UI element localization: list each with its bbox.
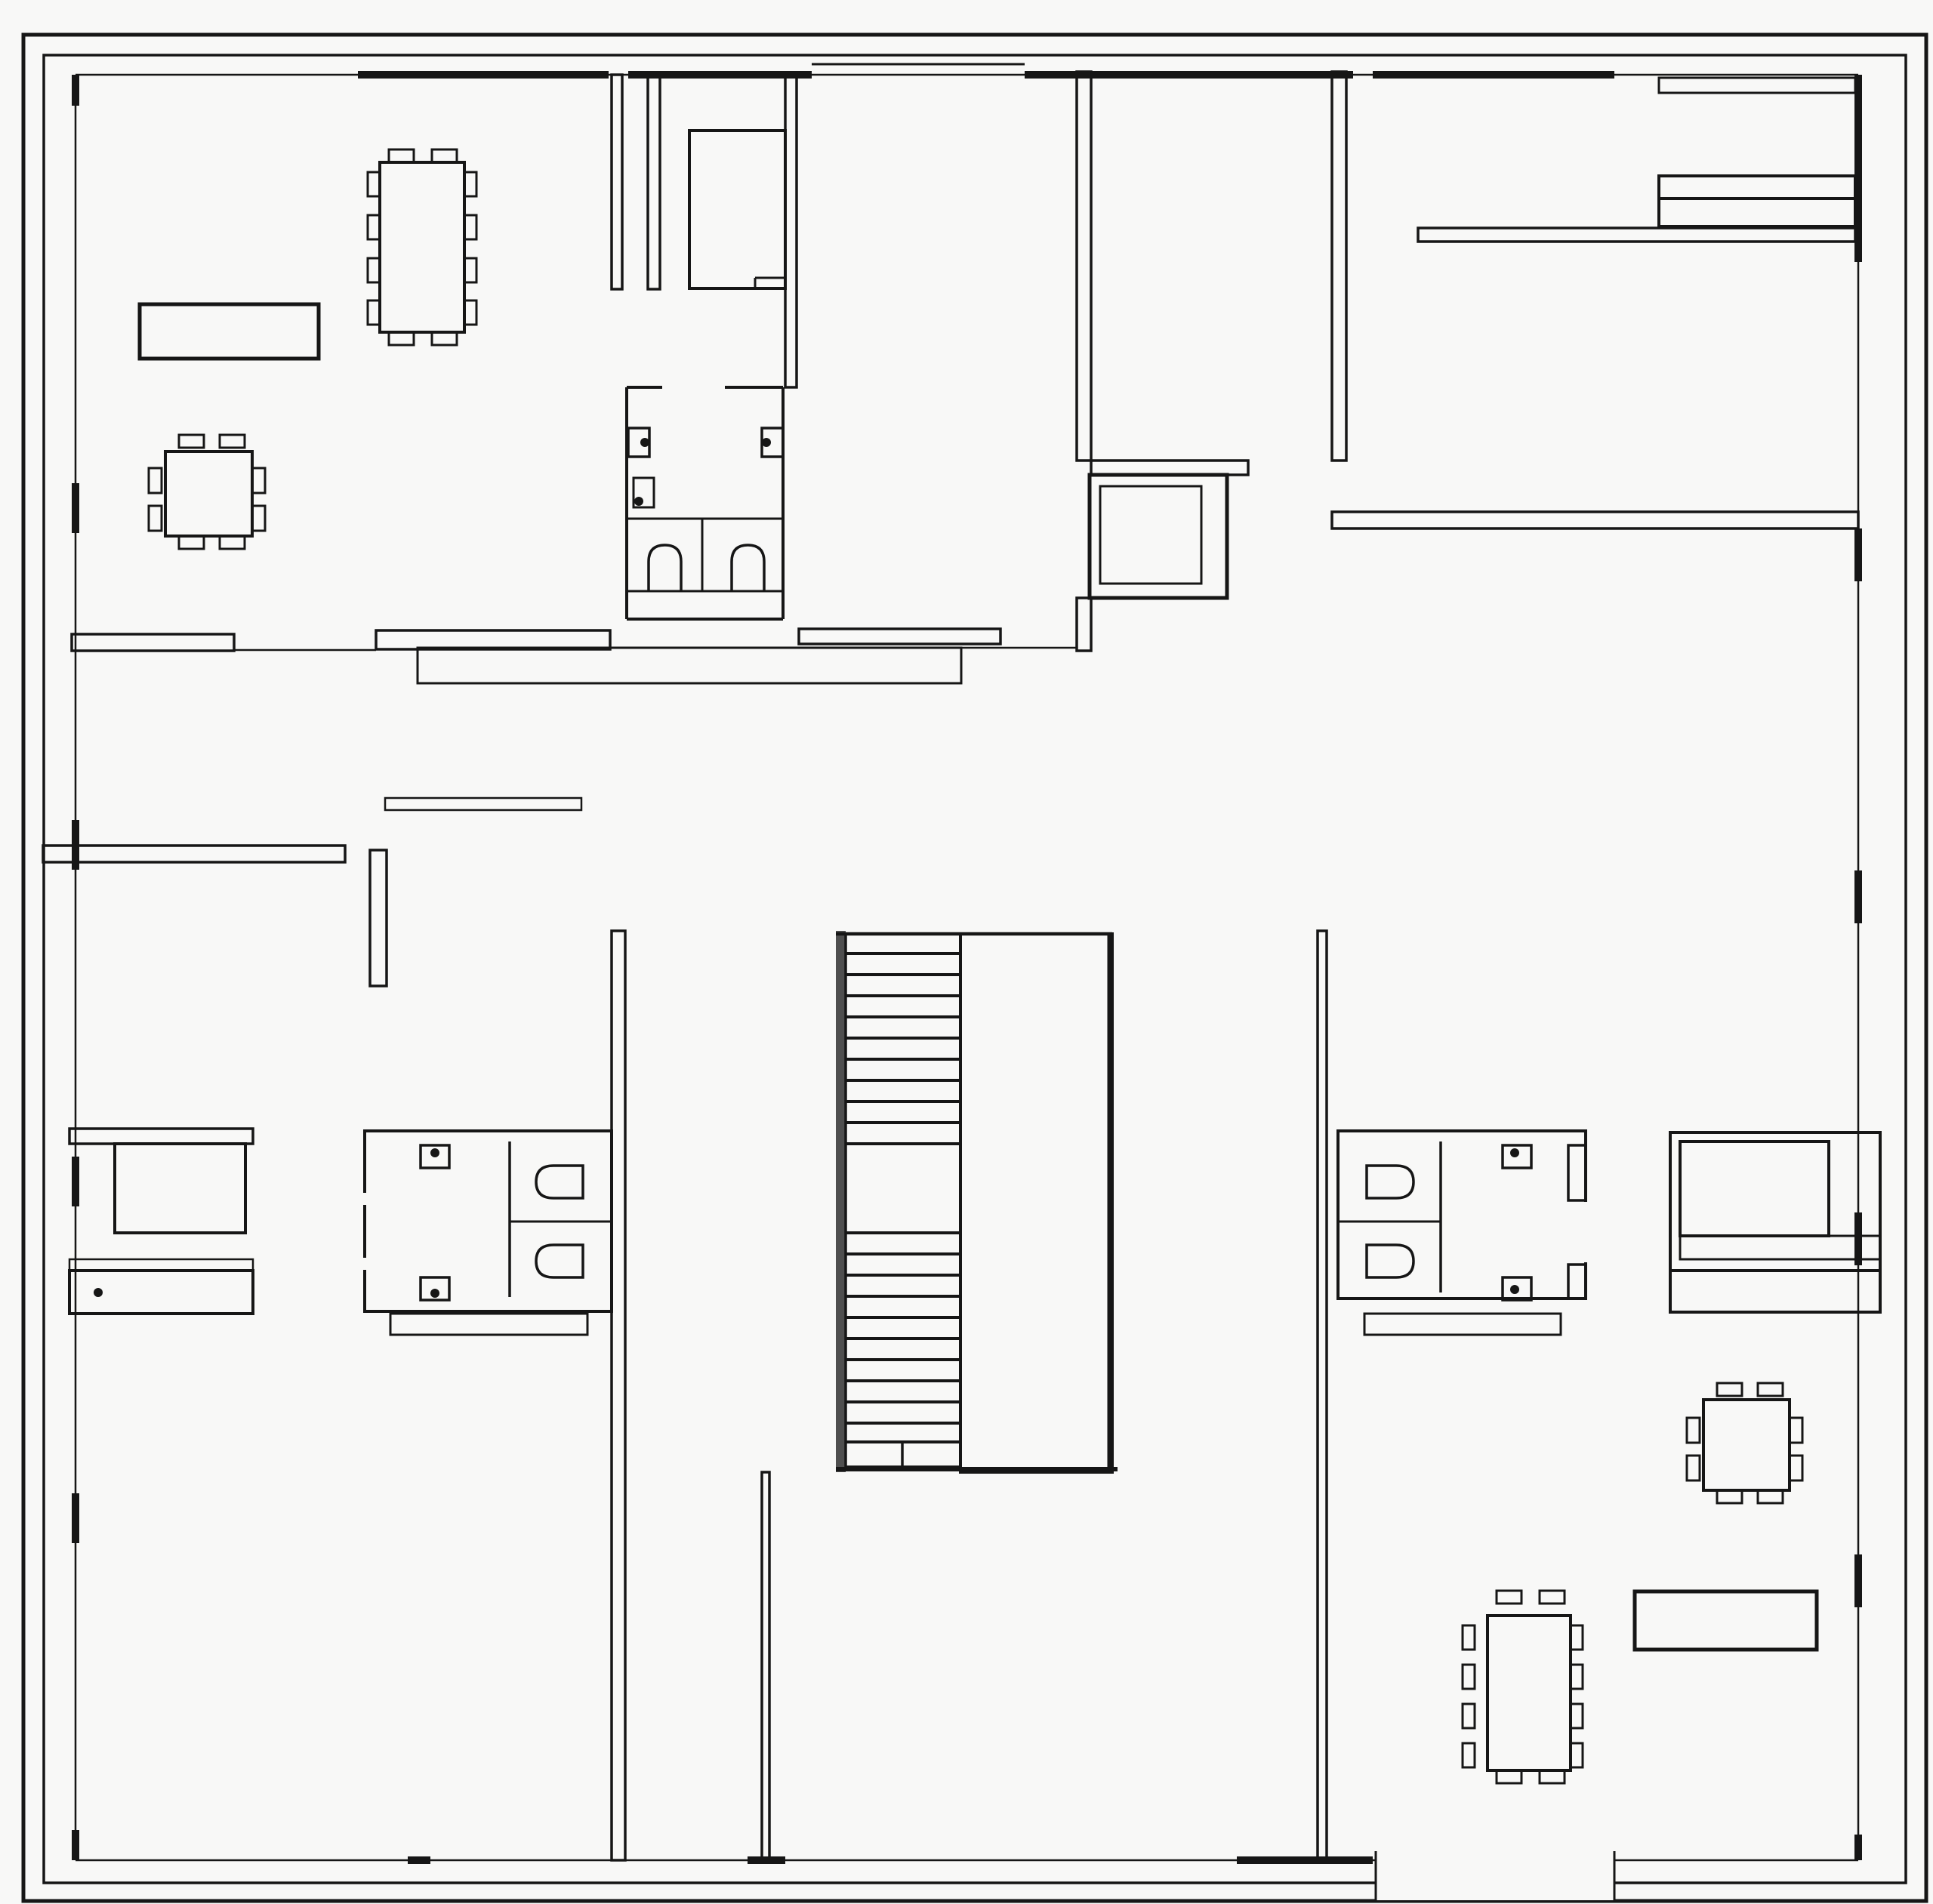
terrace-door-opening <box>1376 1851 1614 1901</box>
floor-plan-page <box>0 0 1933 1904</box>
fixture-dot <box>1510 1148 1519 1157</box>
fixture-dot <box>1510 1285 1519 1294</box>
stair-left-rail <box>836 931 846 1472</box>
floor-plan-canvas <box>0 0 1933 1904</box>
fixture-dot <box>640 438 649 447</box>
fixture-dot <box>762 438 771 447</box>
door-gap-bl-a <box>357 1193 372 1205</box>
fixture-dot <box>430 1289 439 1298</box>
sheet-background <box>0 0 1933 1904</box>
door-gap-bl-b <box>357 1258 372 1270</box>
door-gap-br <box>1580 1202 1593 1262</box>
floor-plan-drawing <box>0 0 1933 1904</box>
fixture-dot <box>94 1288 103 1297</box>
fixture-dot <box>430 1148 439 1157</box>
door-hinge-dot <box>634 497 643 506</box>
